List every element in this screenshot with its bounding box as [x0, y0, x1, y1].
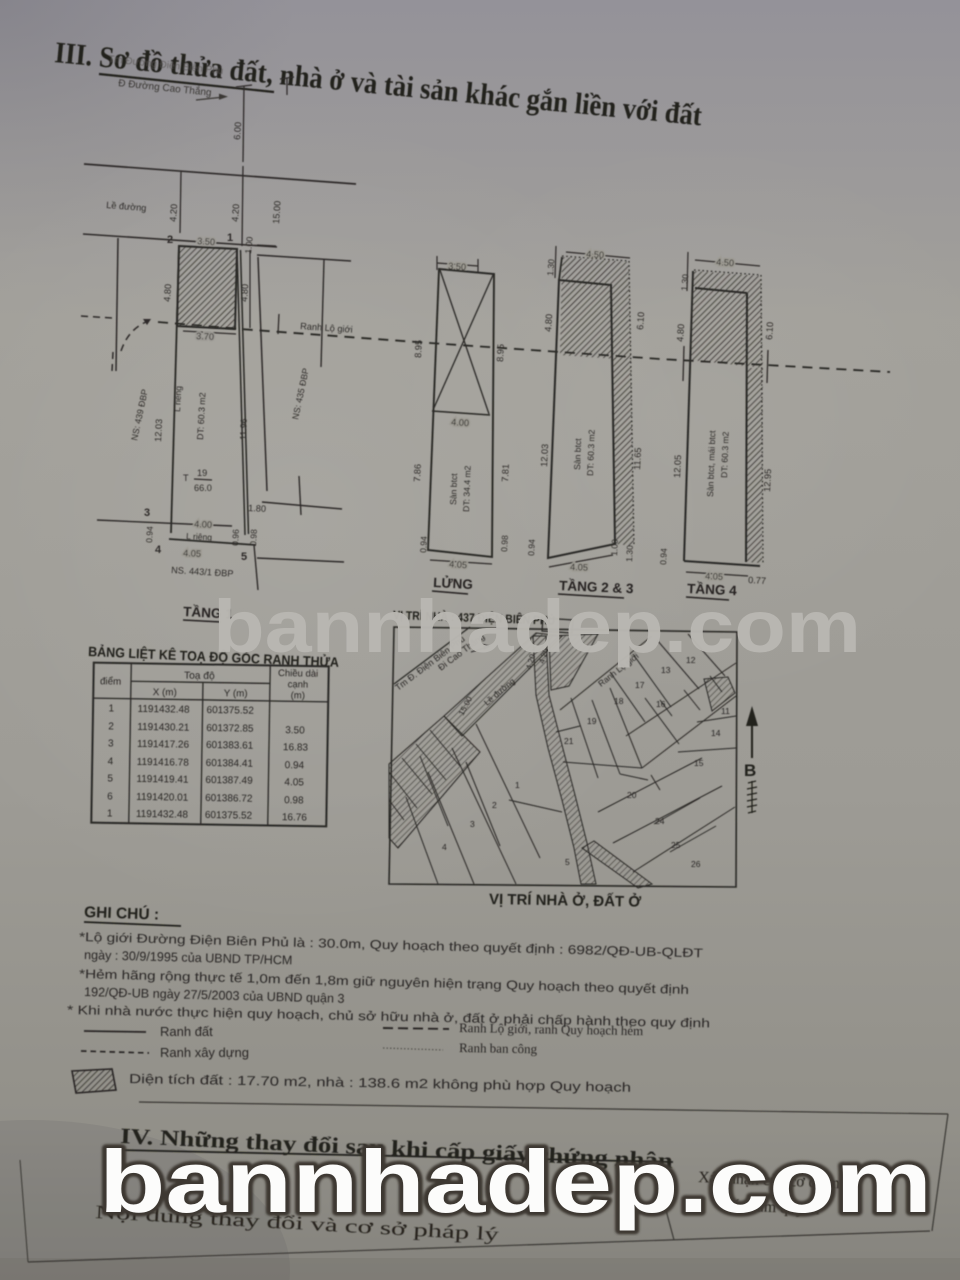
svg-text:1191432.48: 1191432.48	[137, 704, 190, 716]
svg-text:T: T	[183, 473, 189, 483]
svg-text:5: 5	[107, 773, 113, 784]
svg-text:Y (m): Y (m)	[224, 688, 248, 699]
svg-text:1.30: 1.30	[624, 545, 635, 562]
svg-text:1191419.41: 1191419.41	[136, 774, 189, 786]
svg-text:4.80: 4.80	[239, 284, 250, 303]
svg-text:2: 2	[108, 721, 114, 732]
svg-text:20: 20	[627, 790, 637, 800]
svg-text:4.00: 4.00	[451, 417, 470, 428]
svg-text:11: 11	[721, 706, 730, 716]
svg-text:15.00: 15.00	[271, 200, 283, 224]
svg-text:8.95: 8.95	[413, 340, 424, 358]
svg-text:14: 14	[711, 728, 721, 738]
svg-text:1: 1	[515, 780, 520, 790]
svg-text:0.94: 0.94	[526, 539, 537, 556]
svg-text:11.65: 11.65	[632, 447, 643, 470]
svg-text:16.76: 16.76	[282, 812, 308, 823]
svg-text:0.96: 0.96	[230, 529, 241, 546]
svg-text:3: 3	[108, 738, 114, 749]
svg-text:26: 26	[691, 859, 701, 869]
svg-text:2: 2	[167, 234, 173, 246]
svg-text:3.70: 3.70	[196, 331, 214, 342]
svg-text:24: 24	[655, 816, 665, 826]
svg-text:L riêng: L riêng	[172, 385, 183, 412]
svg-text:B: B	[744, 761, 756, 780]
svg-text:bannhadep.com: bannhadep.com	[99, 1132, 932, 1231]
svg-text:601386.72: 601386.72	[205, 793, 253, 805]
svg-text:1191416.78: 1191416.78	[137, 757, 190, 769]
svg-text:điểm: điểm	[100, 676, 121, 687]
svg-text:7.81: 7.81	[500, 464, 511, 482]
svg-text:4.05: 4.05	[705, 571, 723, 582]
svg-text:601372.85: 601372.85	[206, 723, 254, 735]
svg-text:6.10: 6.10	[635, 312, 646, 331]
svg-text:12.95: 12.95	[762, 469, 773, 492]
svg-text:GHI CHÚ :: GHI CHÚ :	[84, 903, 160, 924]
svg-text:0.94: 0.94	[418, 536, 429, 553]
svg-text:1.30: 1.30	[679, 273, 690, 291]
svg-text:4.80: 4.80	[675, 324, 686, 343]
svg-text:1191417.26: 1191417.26	[137, 739, 190, 751]
svg-text:DT: 60.3 m2: DT: 60.3 m2	[719, 431, 731, 478]
svg-text:DT: 60.3 m2: DT: 60.3 m2	[585, 429, 597, 476]
svg-text:Toạ độ: Toạ độ	[184, 671, 215, 682]
svg-text:3.50: 3.50	[197, 236, 216, 247]
svg-text:25: 25	[671, 840, 681, 850]
svg-text:1: 1	[107, 808, 113, 819]
svg-text:bannhadep.com: bannhadep.com	[213, 585, 861, 668]
svg-text:1: 1	[108, 703, 114, 714]
svg-text:cạnh: cạnh	[288, 679, 309, 690]
svg-text:Chiều dài: Chiều dài	[278, 668, 318, 680]
svg-text:Sàn btct: Sàn btct	[448, 473, 459, 505]
svg-text:19: 19	[197, 468, 207, 478]
svg-text:12.03: 12.03	[539, 444, 550, 467]
svg-text:Ranh Lộ giới, ranh Quy hoạch h: Ranh Lộ giới, ranh Quy hoạch hẻm	[459, 1020, 643, 1038]
svg-text:0.94: 0.94	[144, 526, 155, 543]
svg-text:601383.61: 601383.61	[206, 740, 254, 752]
svg-text:17: 17	[635, 680, 645, 690]
svg-text:DT: 34.4 m2: DT: 34.4 m2	[461, 465, 473, 512]
svg-text:3: 3	[470, 819, 475, 829]
svg-text:21: 21	[564, 736, 574, 746]
svg-text:4.05: 4.05	[449, 559, 468, 570]
svg-text:1.00: 1.00	[609, 539, 620, 556]
svg-text:VỊ TRÍ NHÀ Ở, ĐẤT Ở: VỊ TRÍ NHÀ Ở, ĐẤT Ở	[489, 890, 641, 911]
svg-text:Ranh đất: Ranh đất	[160, 1024, 213, 1039]
svg-text:X (m): X (m)	[153, 687, 177, 698]
svg-text:1.30: 1.30	[545, 258, 556, 276]
svg-text:4.05: 4.05	[284, 777, 304, 788]
svg-text:Ranh ban công: Ranh ban công	[459, 1040, 538, 1056]
svg-text:4.80: 4.80	[162, 284, 173, 303]
svg-text:19: 19	[587, 716, 597, 726]
svg-text:2: 2	[492, 800, 497, 810]
svg-text:6: 6	[107, 791, 113, 802]
svg-text:4.05: 4.05	[183, 548, 201, 559]
svg-text:601375.52: 601375.52	[205, 810, 253, 822]
svg-text:Ranh xây dựng: Ranh xây dựng	[160, 1045, 249, 1060]
svg-text:4: 4	[108, 756, 114, 767]
svg-text:66.0: 66.0	[194, 483, 212, 493]
svg-text:601375.52: 601375.52	[206, 705, 254, 717]
svg-text:4.00: 4.00	[194, 519, 212, 530]
svg-text:6.00: 6.00	[232, 122, 243, 141]
svg-text:7.86: 7.86	[412, 464, 423, 482]
svg-text:12.03: 12.03	[153, 419, 164, 442]
svg-text:1191430.21: 1191430.21	[137, 722, 190, 734]
svg-text:15: 15	[694, 758, 704, 768]
svg-text:601384.41: 601384.41	[206, 758, 254, 770]
svg-text:5: 5	[241, 551, 247, 563]
svg-text:4.20: 4.20	[230, 204, 241, 223]
svg-text:1.80: 1.80	[248, 503, 266, 514]
svg-text:12.05: 12.05	[672, 455, 683, 478]
svg-text:6.10: 6.10	[764, 322, 775, 341]
svg-text:16: 16	[656, 699, 666, 709]
svg-text:16.83: 16.83	[283, 742, 309, 753]
svg-text:1191432.48: 1191432.48	[136, 809, 189, 821]
svg-text:1.00: 1.00	[243, 236, 255, 254]
svg-text:8.95: 8.95	[495, 344, 506, 362]
svg-text:4: 4	[155, 544, 162, 556]
svg-text:0.98: 0.98	[284, 795, 304, 806]
svg-text:4: 4	[442, 842, 447, 852]
svg-text:18: 18	[614, 696, 624, 706]
svg-text:Sàn btct: Sàn btct	[572, 438, 583, 470]
svg-text:3: 3	[144, 507, 150, 519]
svg-text:4.20: 4.20	[168, 204, 179, 223]
svg-text:0.94: 0.94	[285, 760, 305, 771]
svg-text:11.96: 11.96	[238, 418, 249, 440]
svg-text:4.80: 4.80	[543, 314, 554, 333]
svg-text:(m): (m)	[291, 690, 305, 701]
svg-text:0.98: 0.98	[248, 529, 259, 546]
svg-text:4.50: 4.50	[716, 257, 735, 268]
svg-text:0.98: 0.98	[499, 535, 510, 552]
svg-text:3.50: 3.50	[285, 725, 305, 736]
svg-text:0.94: 0.94	[658, 548, 669, 565]
svg-text:5: 5	[565, 857, 570, 867]
svg-text:601387.49: 601387.49	[205, 775, 253, 787]
svg-text:1: 1	[227, 232, 233, 244]
svg-text:4.05: 4.05	[570, 562, 588, 573]
svg-text:1191420.01: 1191420.01	[136, 792, 189, 804]
